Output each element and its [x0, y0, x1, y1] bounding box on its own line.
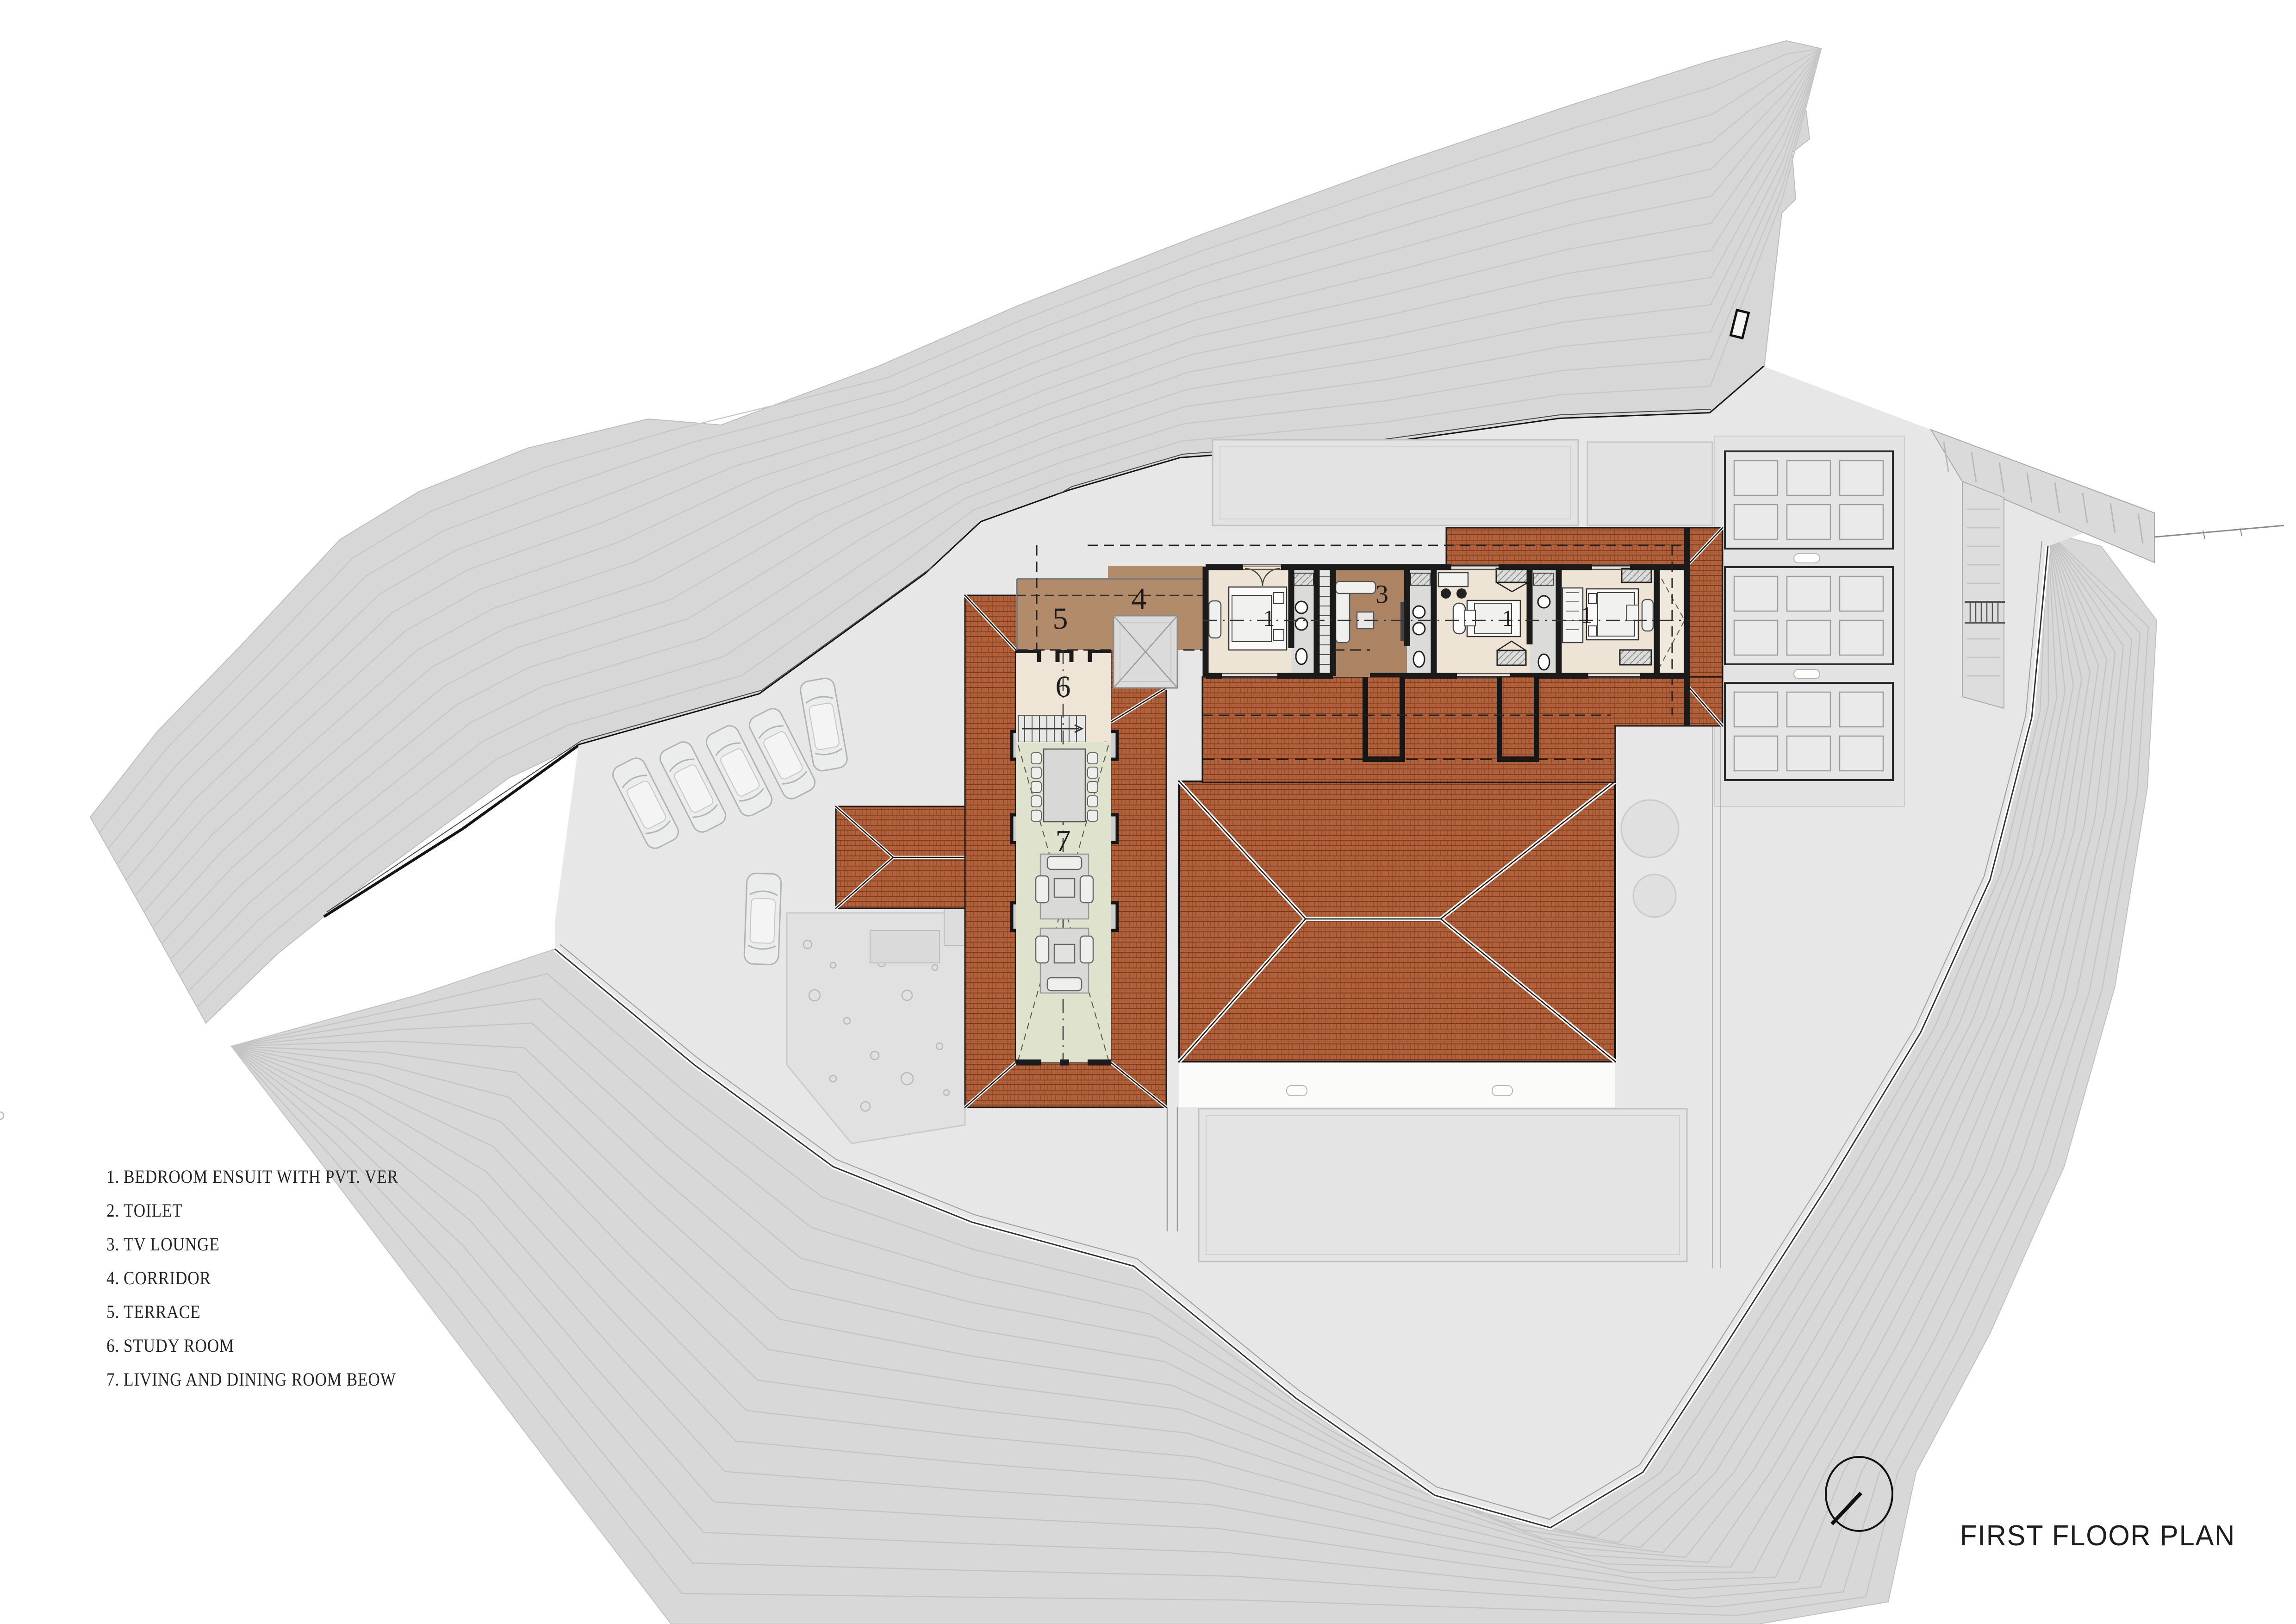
legend: 1.BEDROOM ENSUIT WITH PVT. VER 2.TOILET …	[106, 1160, 398, 1396]
room-label-study: 6	[1056, 670, 1071, 704]
vent-pill	[1287, 1086, 1307, 1096]
vent-pill	[1492, 1086, 1512, 1096]
legend-item: 1.BEDROOM ENSUIT WITH PVT. VER	[106, 1160, 398, 1193]
room-toilet-1	[1291, 567, 1317, 676]
room-label-tv-lounge: 3	[1375, 580, 1388, 609]
desk	[1438, 573, 1468, 587]
sofa-set	[1036, 928, 1093, 993]
sofa-set	[1036, 854, 1093, 919]
room-label-bedroom-1: 1	[1263, 605, 1275, 631]
car	[744, 873, 782, 965]
room-label-living-dining: 7	[1056, 824, 1071, 858]
vent-pill	[1794, 669, 1820, 679]
upper-courtyard	[1213, 440, 1712, 525]
room-toilet-3	[1530, 567, 1559, 676]
bench	[1209, 601, 1221, 638]
drawing-title: FIRST FLOOR PLAN	[1960, 1519, 2235, 1552]
light-well	[1114, 616, 1177, 688]
room-label-terrace: 5	[1053, 602, 1068, 636]
skylight-grid-panels	[1715, 436, 1904, 806]
floor-plan-sheet: 1 1 1 3 4 5 6 7 1.BEDROOM ENSUIT WITH PV…	[0, 0, 2296, 1624]
vent-pill	[1794, 554, 1820, 563]
bed	[1229, 587, 1287, 650]
room-toilet-2	[1407, 567, 1434, 676]
room-label-bedroom-2: 1	[1502, 605, 1514, 631]
stair-left-wing	[1018, 715, 1085, 742]
legend-item: 3.TV LOUNGE	[106, 1227, 398, 1261]
room-bedroom-1	[1206, 567, 1291, 676]
legend-item: 6.STUDY ROOM	[106, 1329, 398, 1362]
room-label-bedroom-3: 1	[1581, 602, 1593, 628]
legend-item: 2.TOILET	[106, 1193, 398, 1227]
legend-item: 4.CORRIDOR	[106, 1261, 398, 1295]
wardrobe	[1562, 588, 1583, 643]
legend-item: 7.LIVING AND DINING ROOM BEOW	[106, 1362, 398, 1396]
room-bedroom-2	[1434, 567, 1530, 676]
main-hip-roof	[1179, 781, 1615, 1062]
legend-item: 5.TERRACE	[106, 1295, 398, 1329]
room-bedroom-3	[1559, 567, 1687, 676]
room-label-corridor: 4	[1132, 582, 1147, 616]
